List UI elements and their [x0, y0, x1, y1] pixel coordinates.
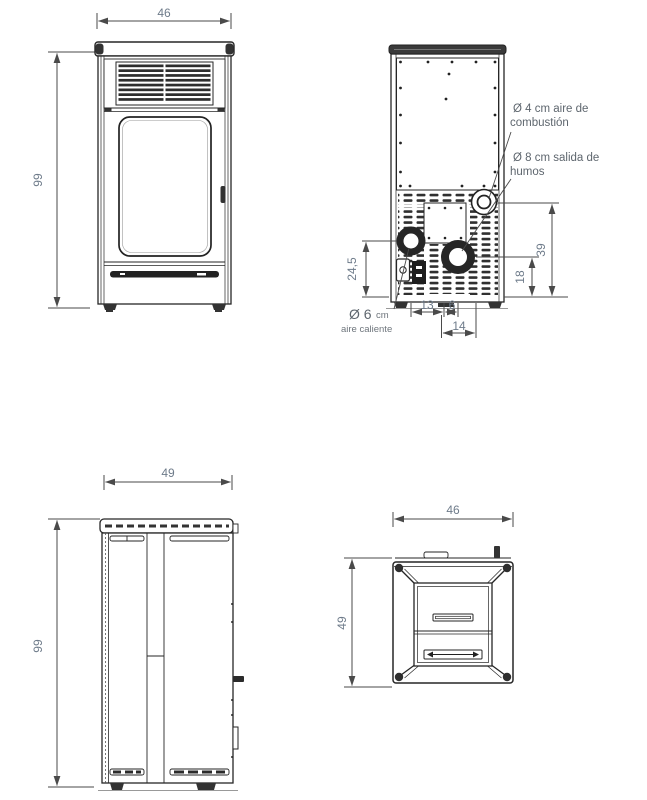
hot-air-unit-label: cm [376, 310, 389, 321]
door-handle [221, 186, 226, 203]
front-width-dim-label: 46 [157, 6, 171, 20]
technical-drawing-page: 46 99 [0, 0, 647, 800]
hot-air-diameter-label: Ø 6 [349, 306, 372, 322]
smoke-outlet-label-line2: humos [510, 166, 545, 178]
rear-dim-18: 18 [513, 270, 527, 284]
rear-feet [386, 302, 508, 309]
top-view: 46 49 [335, 503, 513, 687]
side-height-dim-label: 99 [31, 639, 45, 653]
side-depth-dim-label: 49 [161, 466, 175, 480]
top-upper-slot [433, 614, 473, 621]
stove-drawing: 46 99 [0, 0, 647, 800]
hot-air-outlet [400, 230, 422, 252]
hot-air-text-label: aire caliente [341, 324, 392, 335]
rear-dim-24-5: 24,5 [345, 257, 359, 281]
rear-dim-14: 14 [452, 319, 466, 333]
front-cap-right-end [226, 44, 234, 55]
power-switch [412, 261, 426, 284]
front-height-dim-label: 99 [31, 173, 45, 187]
rear-upper-panel [397, 58, 499, 190]
front-cap-left-end [96, 44, 104, 55]
side-view: 49 99 [31, 466, 244, 791]
side-stove-outline [100, 519, 238, 783]
front-height-dimension [48, 52, 96, 308]
rear-dim-13: 13 [420, 298, 434, 312]
top-depth-dim-label: 49 [335, 616, 349, 630]
front-air-grille [104, 59, 225, 112]
top-width-dim-label: 46 [446, 503, 460, 517]
door-glass [119, 117, 211, 256]
front-feet [103, 304, 226, 312]
top-knob [494, 546, 500, 558]
top-rear-tab [424, 552, 448, 558]
front-door [119, 117, 226, 256]
combustion-air-label-line1: Ø 4 cm aire de [513, 103, 588, 115]
side-feet [98, 783, 238, 791]
combustion-air-label-line2: combustión [510, 117, 569, 129]
front-view: 46 99 [31, 6, 234, 312]
rear-dim-6: 6 [449, 298, 456, 312]
smoke-outlet [445, 244, 471, 270]
side-hinge-bracket [233, 727, 238, 749]
side-height-dimension [48, 519, 100, 787]
combustion-air-inlet [472, 190, 497, 215]
top-stove-outline [393, 546, 513, 683]
side-door-handle [233, 676, 244, 682]
smoke-outlet-label-line1: Ø 8 cm salida de [513, 152, 599, 164]
rear-dim-39: 39 [534, 243, 548, 257]
top-depth-dimension [344, 558, 392, 687]
rear-view: Ø 4 cm aire de combustión Ø 8 cm salida … [341, 45, 599, 338]
power-socket [397, 259, 410, 281]
